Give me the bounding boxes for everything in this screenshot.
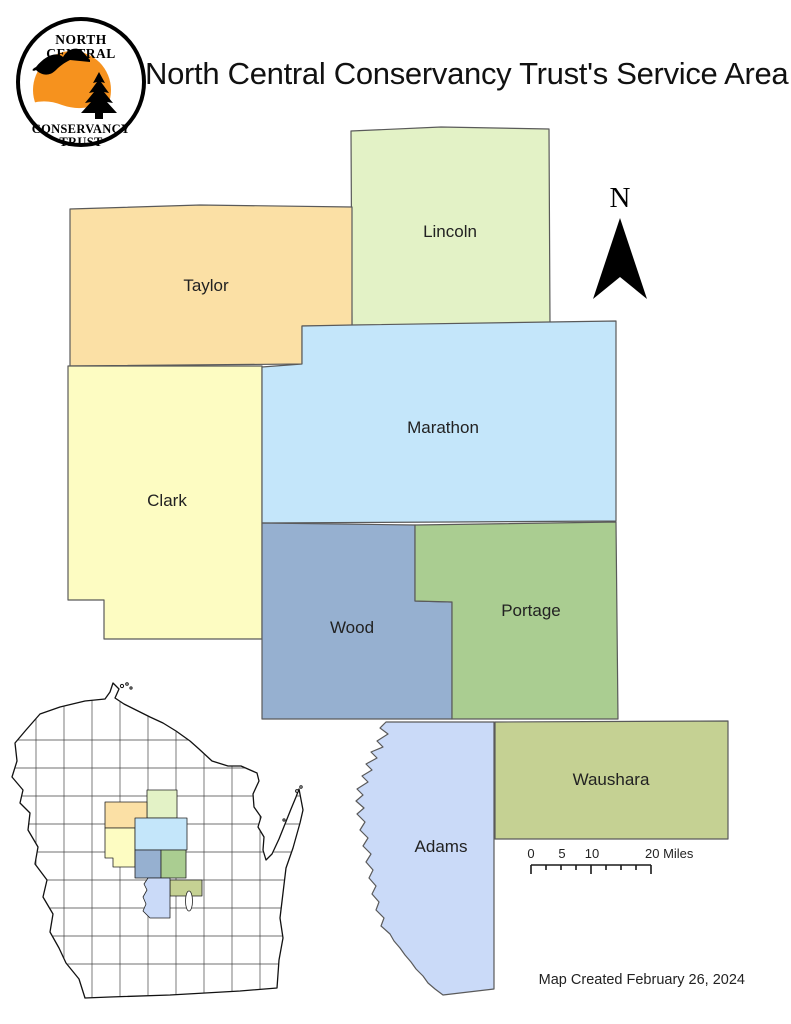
service-area-map: NORTH CENTRAL CONSERVANCY TRUST North Ce… (0, 0, 791, 1024)
county-label-portage: Portage (501, 601, 561, 620)
scale-label-10: 10 (585, 846, 599, 861)
logo-text-trust: TRUST (59, 135, 103, 149)
scale-label-20-miles: 20 Miles (645, 846, 694, 861)
logo-text-central: CENTRAL (46, 46, 116, 61)
inset-adams (143, 878, 170, 918)
inset-lake-winnebago (186, 891, 193, 911)
logo-text-conservancy: CONSERVANCY (32, 122, 130, 136)
county-shape-adams (356, 722, 494, 995)
north-arrow: N (593, 182, 647, 299)
scale-bar-ticks (531, 865, 651, 874)
county-label-waushara: Waushara (573, 770, 650, 789)
logo-text-north: NORTH (55, 32, 107, 47)
county-label-taylor: Taylor (183, 276, 229, 295)
north-arrow-icon (593, 218, 647, 299)
scale-label-0: 0 (527, 846, 534, 861)
wisconsin-inset-map (0, 680, 310, 1000)
logo: NORTH CENTRAL CONSERVANCY TRUST (18, 19, 144, 149)
scale-label-5: 5 (558, 846, 565, 861)
inset-marathon (135, 818, 187, 850)
north-arrow-label: N (610, 182, 631, 214)
map-credit: Map Created February 26, 2024 (539, 972, 745, 988)
inset-wood (135, 850, 161, 878)
inset-lincoln (147, 790, 177, 818)
county-label-clark: Clark (147, 491, 187, 510)
scale-bar: 0 5 10 20 Miles (527, 846, 694, 874)
county-label-adams: Adams (415, 837, 468, 856)
county-label-lincoln: Lincoln (423, 222, 477, 241)
inset-portage (161, 850, 186, 878)
inset-waushara (170, 880, 202, 896)
map-page: NORTH CENTRAL CONSERVANCY TRUST North Ce… (0, 0, 791, 1024)
county-label-wood: Wood (330, 618, 374, 637)
county-label-marathon: Marathon (407, 418, 479, 437)
logo-art (18, 49, 134, 132)
page-title: North Central Conservancy Trust's Servic… (145, 56, 789, 91)
